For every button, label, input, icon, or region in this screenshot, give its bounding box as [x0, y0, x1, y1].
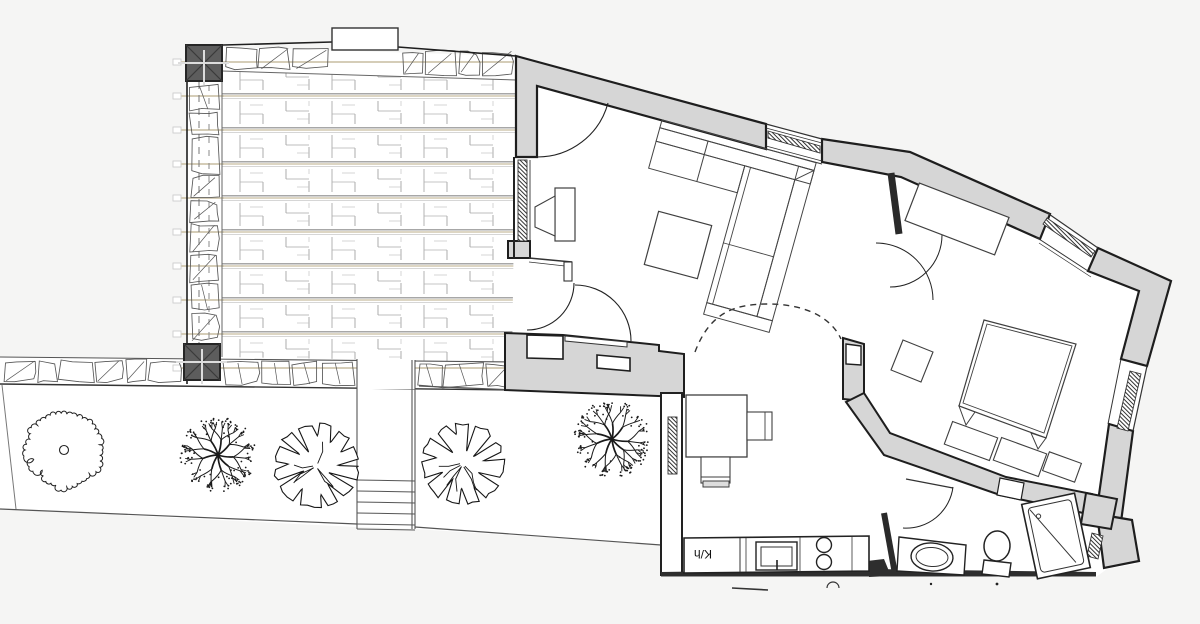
- svg-text:K/h: K/h: [694, 547, 712, 561]
